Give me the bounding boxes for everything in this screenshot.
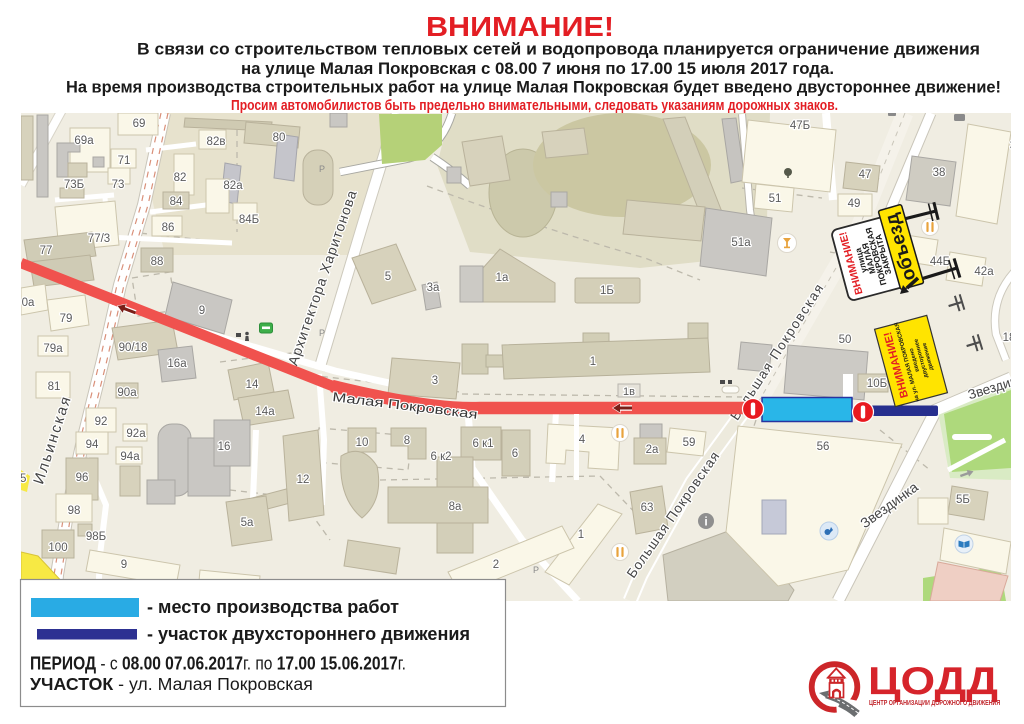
- svg-text:47: 47: [859, 169, 872, 181]
- svg-text:73: 73: [112, 179, 125, 191]
- svg-text:90а: 90а: [117, 387, 137, 399]
- svg-text:2а: 2а: [646, 444, 659, 456]
- svg-text:на улице Малая Покровская с 08: на улице Малая Покровская с 08.00 7 июня…: [241, 59, 834, 78]
- svg-text:16а: 16а: [167, 358, 187, 370]
- svg-text:6: 6: [512, 448, 518, 460]
- svg-text:92: 92: [95, 416, 108, 428]
- svg-text:4: 4: [579, 434, 586, 446]
- svg-text:94: 94: [86, 439, 99, 451]
- svg-text:80: 80: [273, 132, 286, 144]
- svg-text:84Б: 84Б: [239, 214, 259, 226]
- svg-text:0а: 0а: [22, 297, 35, 309]
- svg-text:На время производства строител: На время производства строительных работ…: [66, 78, 1001, 97]
- svg-text:84: 84: [170, 196, 183, 208]
- svg-text:8а: 8а: [449, 501, 462, 513]
- svg-text:1: 1: [590, 356, 596, 368]
- svg-text:10Б: 10Б: [867, 378, 887, 390]
- svg-text:63: 63: [641, 502, 654, 514]
- svg-text:88: 88: [151, 256, 164, 268]
- svg-text:77: 77: [40, 245, 53, 257]
- svg-text:90/18: 90/18: [119, 342, 148, 354]
- svg-text:УЧАСТОК - ул. Малая Покровская: УЧАСТОК - ул. Малая Покровская: [30, 674, 313, 694]
- svg-text:12: 12: [297, 474, 310, 486]
- svg-text:3а: 3а: [427, 282, 440, 294]
- svg-text:5Б: 5Б: [956, 494, 970, 506]
- svg-text:50: 50: [839, 334, 852, 346]
- svg-text:Просим автомобилистов быть пре: Просим автомобилистов быть предельно вни…: [231, 98, 838, 114]
- svg-text:71: 71: [118, 155, 131, 167]
- svg-text:94а: 94а: [120, 451, 140, 463]
- svg-text:86: 86: [162, 222, 175, 234]
- svg-text:49: 49: [848, 198, 861, 210]
- svg-text:- место производства работ: - место производства работ: [147, 597, 399, 617]
- svg-text:ПЕРИОД - с 08.00 07.06.2017г.: ПЕРИОД - с 08.00 07.06.2017г. по 17.00 1…: [30, 653, 406, 673]
- svg-text:10: 10: [356, 437, 369, 449]
- svg-text:98: 98: [68, 505, 81, 517]
- svg-text:98Б: 98Б: [86, 531, 106, 543]
- svg-text:100: 100: [48, 542, 67, 554]
- svg-text:3: 3: [432, 375, 438, 387]
- svg-text:77/3: 77/3: [88, 233, 110, 245]
- svg-text:1Б: 1Б: [600, 285, 614, 297]
- svg-text:81: 81: [48, 381, 61, 393]
- svg-text:1в: 1в: [623, 386, 635, 398]
- svg-text:ВНИМАНИЕ!: ВНИМАНИЕ!: [426, 11, 614, 42]
- svg-text:9: 9: [199, 305, 205, 317]
- svg-text:i: i: [704, 515, 707, 529]
- svg-text:82а: 82а: [223, 180, 243, 192]
- svg-text:47Б: 47Б: [790, 120, 810, 132]
- svg-text:38: 38: [933, 167, 946, 179]
- svg-text:59: 59: [683, 437, 696, 449]
- svg-text:ЦОДД: ЦОДД: [868, 660, 998, 703]
- svg-text:16: 16: [218, 441, 231, 453]
- svg-text:5: 5: [385, 271, 391, 283]
- svg-text:69а: 69а: [74, 135, 94, 147]
- svg-text:44Б: 44Б: [930, 256, 950, 268]
- svg-text:9: 9: [121, 559, 127, 571]
- svg-text:92а: 92а: [126, 428, 146, 440]
- svg-text:6 к2: 6 к2: [430, 451, 451, 463]
- svg-text:Р: Р: [533, 565, 539, 575]
- svg-text:14: 14: [246, 379, 259, 391]
- svg-text:ЦЕНТР ОРГАНИЗАЦИИ ДОРОЖНОГО ДВ: ЦЕНТР ОРГАНИЗАЦИИ ДОРОЖНОГО ДВИЖЕНИЯ: [869, 699, 1001, 707]
- svg-text:Р: Р: [319, 164, 325, 174]
- svg-text:2: 2: [493, 559, 499, 571]
- svg-text:73Б: 73Б: [64, 179, 84, 191]
- svg-text:Р: Р: [319, 328, 325, 338]
- svg-text:14а: 14а: [255, 406, 275, 418]
- svg-text:56: 56: [817, 441, 830, 453]
- svg-text:82в: 82в: [207, 136, 226, 148]
- svg-text:51: 51: [769, 193, 782, 205]
- svg-text:69: 69: [133, 118, 146, 130]
- svg-text:5а: 5а: [241, 517, 254, 529]
- svg-text:6 к1: 6 к1: [472, 438, 493, 450]
- svg-text:79: 79: [60, 313, 73, 325]
- svg-text:82: 82: [174, 172, 187, 184]
- svg-text:96: 96: [76, 472, 89, 484]
- svg-text:42а: 42а: [974, 266, 994, 278]
- svg-text:51а: 51а: [731, 237, 751, 249]
- svg-text:1: 1: [578, 529, 584, 541]
- svg-text:8: 8: [404, 435, 410, 447]
- svg-text:В связи со строительством тепл: В связи со строительством тепловых сетей…: [137, 40, 980, 59]
- svg-text:- участок двухстороннего движе: - участок двухстороннего движения: [147, 624, 470, 644]
- svg-text:1а: 1а: [496, 272, 509, 284]
- svg-text:79а: 79а: [43, 343, 63, 355]
